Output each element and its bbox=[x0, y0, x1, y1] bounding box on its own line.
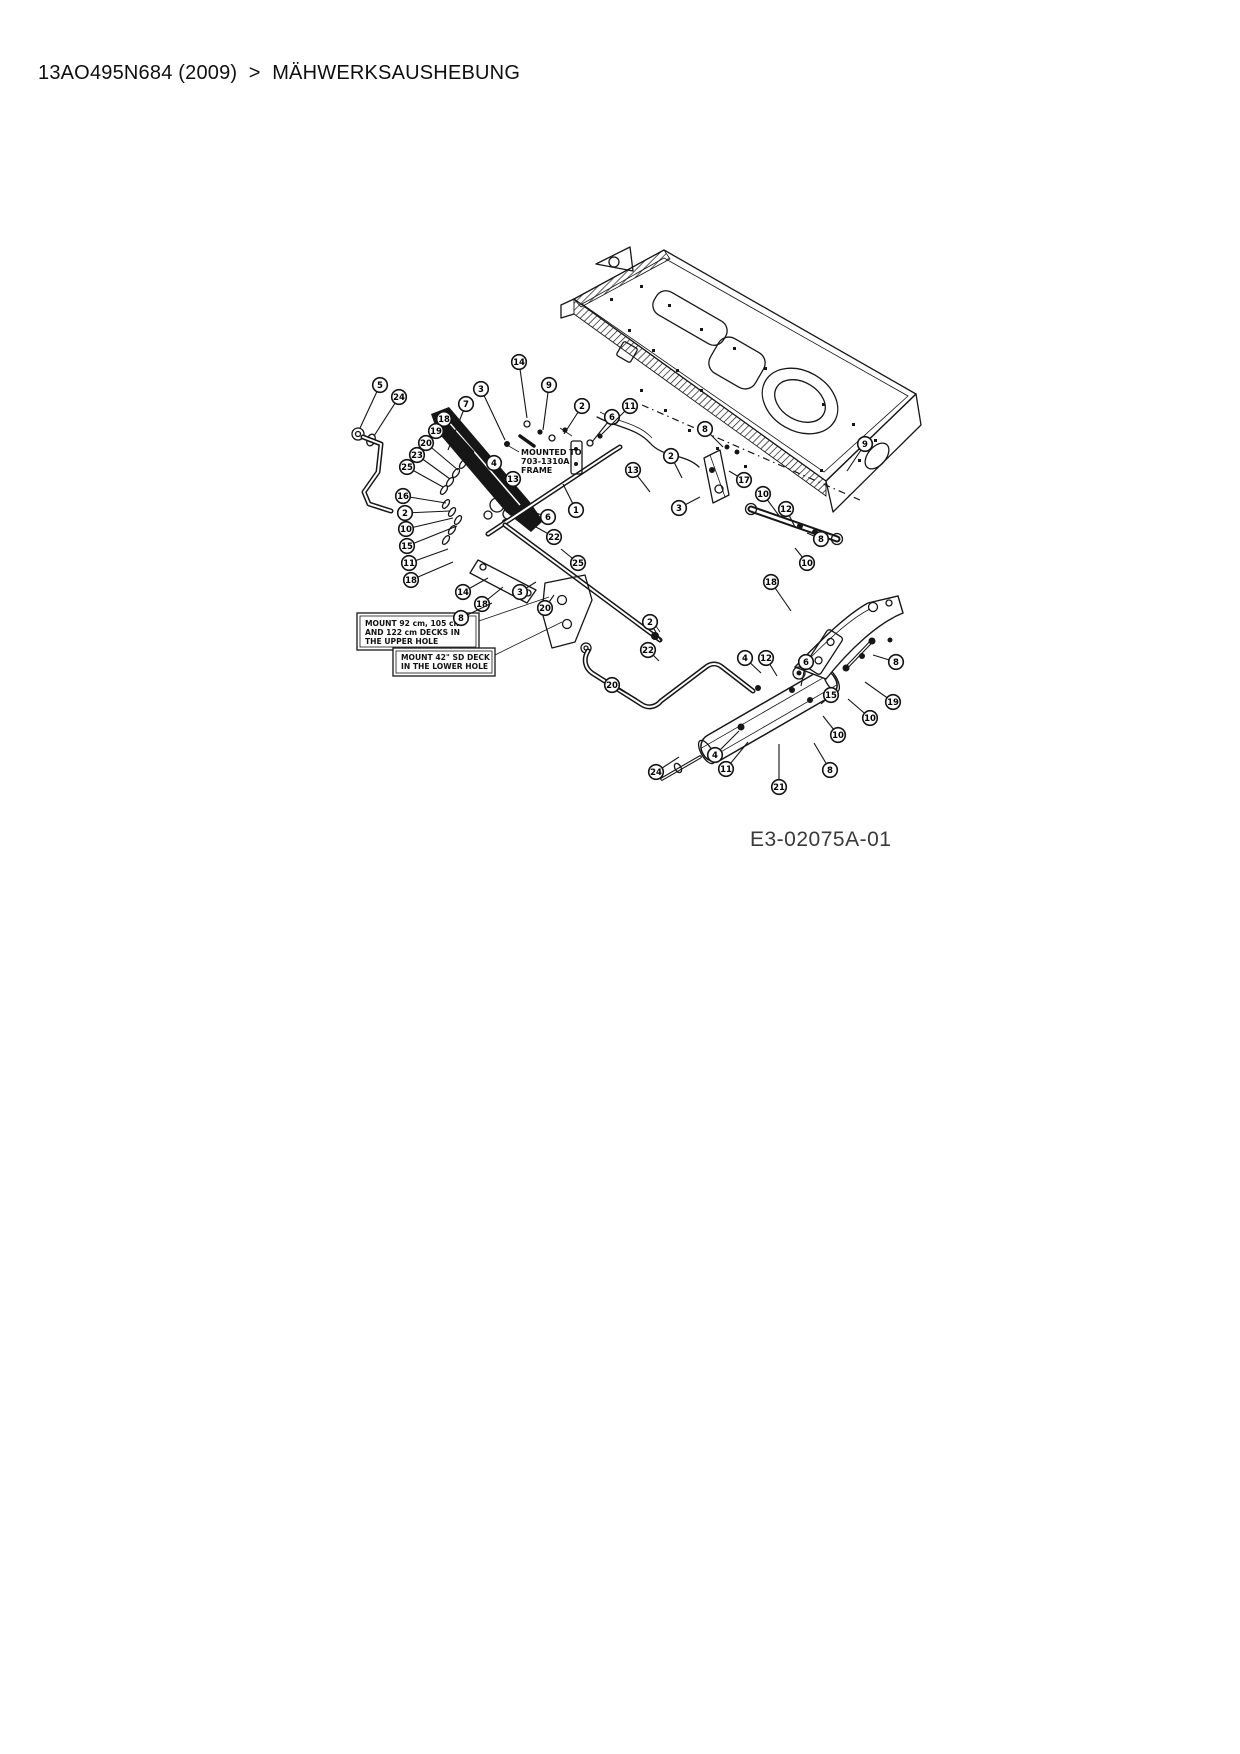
upper-hole-note-box: MOUNT 92 cm, 105 cm AND 122 cm DECKS IN … bbox=[357, 597, 549, 650]
svg-text:11: 11 bbox=[720, 765, 732, 775]
svg-text:10: 10 bbox=[400, 525, 412, 535]
svg-text:8: 8 bbox=[458, 614, 464, 624]
callout-24: 24 bbox=[374, 390, 406, 436]
svg-text:18: 18 bbox=[476, 600, 488, 610]
svg-text:2: 2 bbox=[668, 452, 674, 462]
roller-cylinder-assembly bbox=[662, 596, 903, 779]
callout-9: 9 bbox=[847, 437, 872, 471]
callout-18: 18 bbox=[475, 587, 503, 611]
svg-text:15: 15 bbox=[825, 691, 837, 701]
svg-text:25: 25 bbox=[401, 463, 413, 473]
frame-mount-bracket bbox=[571, 441, 582, 474]
svg-text:3: 3 bbox=[517, 588, 523, 598]
svg-text:20: 20 bbox=[539, 604, 551, 614]
svg-text:10: 10 bbox=[757, 490, 769, 500]
callout-22: 22 bbox=[536, 527, 561, 544]
svg-text:18: 18 bbox=[765, 578, 777, 588]
svg-text:9: 9 bbox=[862, 440, 868, 450]
callout-2: 2 bbox=[664, 449, 682, 478]
svg-text:14: 14 bbox=[513, 358, 525, 368]
svg-text:2: 2 bbox=[579, 402, 585, 412]
tractor-frame bbox=[561, 247, 921, 512]
svg-text:1: 1 bbox=[573, 506, 579, 516]
svg-text:2: 2 bbox=[402, 509, 408, 519]
svg-text:11: 11 bbox=[624, 402, 636, 412]
svg-text:2: 2 bbox=[647, 618, 653, 628]
callout-8: 8 bbox=[698, 422, 723, 447]
svg-text:4: 4 bbox=[491, 459, 497, 469]
upper-hardware-cluster bbox=[524, 421, 603, 446]
svg-text:8: 8 bbox=[827, 766, 833, 776]
note-line: 703-1310A bbox=[521, 457, 570, 466]
note-line: MOUNT 42" SD DECK bbox=[401, 653, 491, 662]
svg-text:8: 8 bbox=[818, 535, 824, 545]
lift-shaft-rod bbox=[581, 620, 753, 707]
callout-18: 18 bbox=[764, 575, 791, 611]
svg-text:13: 13 bbox=[507, 475, 519, 485]
lift-lever-assembly bbox=[431, 407, 543, 546]
note-line: MOUNT 92 cm, 105 cm bbox=[365, 619, 462, 628]
svg-text:8: 8 bbox=[702, 425, 708, 435]
callout-6: 6 bbox=[592, 410, 619, 442]
callout-2: 2 bbox=[564, 399, 589, 434]
svg-text:20: 20 bbox=[420, 439, 432, 449]
callout-14: 14 bbox=[512, 355, 527, 418]
svg-text:3: 3 bbox=[478, 385, 484, 395]
callout-5: 5 bbox=[360, 378, 387, 428]
note-line: IN THE LOWER HOLE bbox=[401, 662, 488, 671]
svg-text:10: 10 bbox=[864, 714, 876, 724]
svg-text:19: 19 bbox=[430, 427, 442, 437]
note-line: MOUNTED TO bbox=[521, 448, 582, 457]
parts-diagram: MOUNTED TO 703-1310A FRAME MOUNT 92 cm, … bbox=[0, 0, 1240, 1754]
svg-text:20: 20 bbox=[606, 681, 618, 691]
svg-text:4: 4 bbox=[742, 654, 748, 664]
svg-text:21: 21 bbox=[773, 783, 785, 793]
svg-text:17: 17 bbox=[738, 476, 750, 486]
svg-text:18: 18 bbox=[438, 415, 450, 425]
svg-text:24: 24 bbox=[650, 768, 662, 778]
svg-text:10: 10 bbox=[801, 559, 813, 569]
svg-text:8: 8 bbox=[893, 658, 899, 668]
svg-text:15: 15 bbox=[401, 542, 413, 552]
callout-13: 13 bbox=[626, 463, 650, 492]
svg-text:5: 5 bbox=[377, 381, 383, 391]
svg-text:18: 18 bbox=[405, 576, 417, 586]
callout-8: 8 bbox=[873, 655, 903, 670]
lift-handle-assembly bbox=[352, 428, 391, 511]
svg-text:12: 12 bbox=[760, 654, 772, 664]
callout-16: 16 bbox=[396, 489, 446, 504]
svg-text:6: 6 bbox=[803, 658, 809, 668]
callout-10: 10 bbox=[848, 699, 877, 725]
svg-text:7: 7 bbox=[463, 400, 469, 410]
svg-text:22: 22 bbox=[548, 533, 560, 543]
svg-text:12: 12 bbox=[780, 505, 792, 515]
note-line: THE UPPER HOLE bbox=[365, 637, 438, 646]
callout-10: 10 bbox=[795, 548, 814, 570]
callout-3: 3 bbox=[474, 382, 505, 440]
svg-text:9: 9 bbox=[546, 381, 552, 391]
svg-text:24: 24 bbox=[393, 393, 405, 403]
svg-text:3: 3 bbox=[676, 504, 682, 514]
callout-23: 23 bbox=[410, 448, 450, 479]
callout-3: 3 bbox=[672, 497, 700, 515]
callout-10: 10 bbox=[823, 716, 845, 742]
callout-22: 22 bbox=[641, 643, 659, 661]
figure-code: E3-02075A-01 bbox=[750, 828, 891, 852]
svg-text:14: 14 bbox=[457, 588, 469, 598]
callout-group: 5243718192023251621015111814926114136122… bbox=[360, 355, 903, 795]
callout-12: 12 bbox=[759, 651, 777, 676]
callout-25: 25 bbox=[400, 460, 443, 487]
callout-21: 21 bbox=[772, 744, 787, 794]
svg-text:23: 23 bbox=[411, 451, 423, 461]
callout-8: 8 bbox=[807, 532, 828, 547]
svg-text:25: 25 bbox=[572, 559, 584, 569]
note-line: FRAME bbox=[521, 466, 552, 475]
svg-text:4: 4 bbox=[712, 751, 718, 761]
callout-1: 1 bbox=[563, 484, 583, 517]
callout-9: 9 bbox=[542, 378, 557, 430]
callout-8: 8 bbox=[814, 743, 837, 777]
svg-text:22: 22 bbox=[642, 646, 654, 656]
svg-text:13: 13 bbox=[627, 466, 639, 476]
note-line: AND 122 cm DECKS IN bbox=[365, 628, 460, 637]
callout-19: 19 bbox=[865, 682, 900, 709]
callout-4: 4 bbox=[738, 651, 761, 673]
svg-text:19: 19 bbox=[887, 698, 899, 708]
svg-text:11: 11 bbox=[403, 559, 415, 569]
svg-text:6: 6 bbox=[545, 513, 551, 523]
callout-17: 17 bbox=[729, 471, 751, 487]
svg-text:16: 16 bbox=[397, 492, 409, 502]
svg-text:10: 10 bbox=[832, 731, 844, 741]
